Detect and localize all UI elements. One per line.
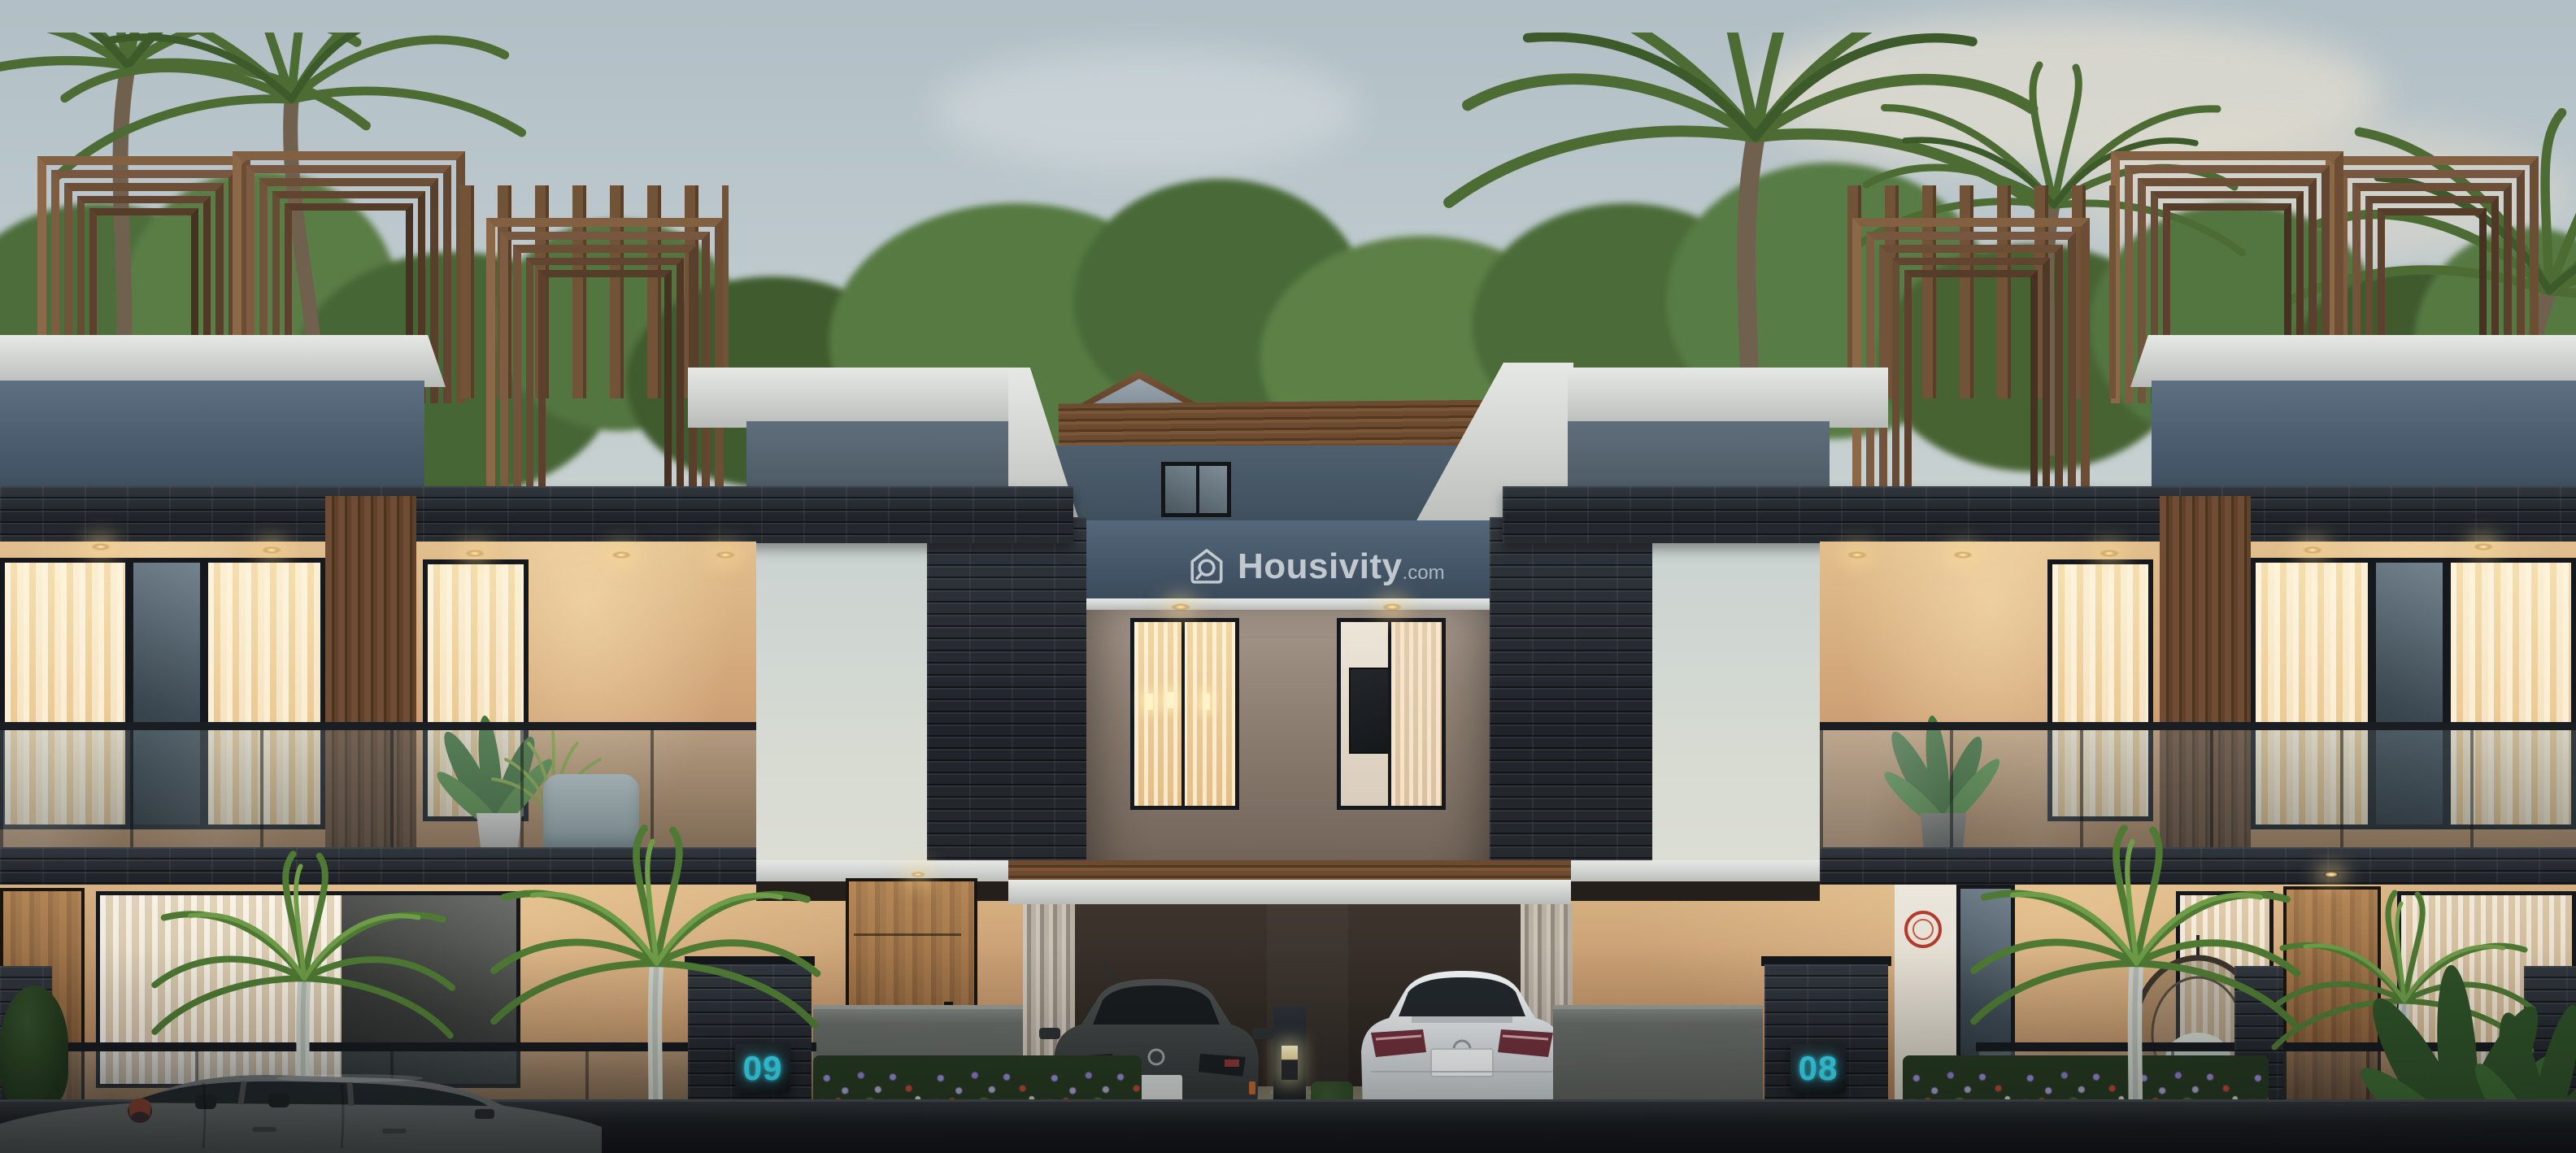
recess-window-left: [1130, 618, 1239, 810]
pendant-light: [1146, 694, 1153, 710]
porch-lintel-right: [1553, 860, 1820, 883]
porch-soffit-right: [1553, 881, 1820, 901]
canopy-downlight: [1847, 551, 1867, 559]
parapet-right-d: [1568, 368, 1888, 428]
canopy-downlight: [91, 543, 111, 550]
stone-canopy-right: [1503, 486, 2576, 543]
roof-wood-portal-large: [1852, 218, 2090, 498]
parapet-left-a: [0, 335, 446, 387]
watermark-brand: Housivity: [1238, 549, 1403, 585]
recess-stone-flank-left: [927, 517, 1086, 906]
canopy-downlight: [716, 551, 735, 559]
attic-window-mullion: [1196, 466, 1199, 513]
house-magnifier-icon: [1186, 546, 1228, 588]
recess-stone-flank-right: [1490, 517, 1652, 906]
porch-downlight: [2324, 872, 2339, 877]
wall-art-frame: [1349, 668, 1391, 754]
canopy-downlight: [262, 546, 281, 554]
house-number-08: 08: [1799, 1049, 1838, 1088]
car-gray-passing: [0, 1070, 602, 1153]
bollard-light: [1281, 1046, 1298, 1080]
center-fascia-edge: [1039, 598, 1540, 610]
villa-render-scene: 09 08: [0, 0, 2576, 1153]
canopy-downlight: [2474, 543, 2493, 550]
housivity-watermark: Housivity .com: [1186, 543, 1445, 590]
carport-lintel: [1008, 880, 1571, 904]
parapet-left-b: [688, 368, 1008, 428]
stone-canopy-left: [0, 486, 1073, 543]
roof-wood-portal-large: [486, 218, 724, 498]
round-wall-emblem: [1904, 911, 1942, 948]
recess-downlight: [1382, 603, 1402, 611]
canopy-downlight: [611, 551, 631, 559]
recess-downlight: [1171, 603, 1190, 611]
pendant-light: [1203, 694, 1210, 710]
door-09-transom-line: [854, 933, 961, 936]
pendant-light: [1167, 692, 1174, 708]
canopy-downlight: [1953, 551, 1973, 559]
recess-window-right: [1337, 618, 1446, 810]
recess-window-right-mullion: [1388, 622, 1391, 806]
parapet-right-e: [2130, 335, 2576, 387]
canopy-downlight: [465, 550, 485, 557]
watermark-tld: .com: [1403, 563, 1445, 585]
house-number-plaque-08: 08: [1791, 1044, 1846, 1093]
canopy-downlight: [2100, 550, 2119, 557]
porch-downlight: [911, 872, 925, 877]
recess-window-right-curtain: [1391, 622, 1442, 806]
attic-window: [1161, 462, 1231, 517]
recess-window-left-mullion: [1181, 622, 1185, 806]
roof-wood-fascia: [1059, 400, 1515, 453]
canopy-downlight: [2303, 546, 2322, 554]
